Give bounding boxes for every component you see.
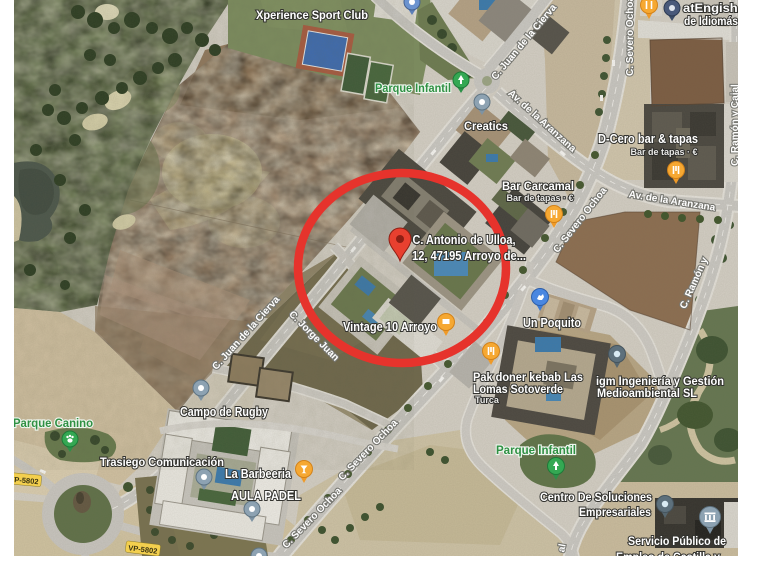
svg-text:C. Severo Ochoa: C. Severo Ochoa bbox=[625, 0, 636, 76]
svg-text:Bar Carcamal: Bar Carcamal bbox=[502, 179, 574, 193]
svg-text:AULA PADEL: AULA PADEL bbox=[231, 489, 301, 503]
svg-text:Servicio Público de: Servicio Público de bbox=[628, 536, 726, 548]
svg-text:Parque Infantil: Parque Infantil bbox=[496, 445, 576, 457]
svg-text:Centro De Soluciones: Centro De Soluciones bbox=[540, 492, 652, 504]
svg-text:Xperience Sport Club: Xperience Sport Club bbox=[256, 10, 368, 22]
svg-text:Parque Canino: Parque Canino bbox=[13, 418, 93, 430]
svg-text:C. Ramón y Cajal: C. Ramón y Cajal bbox=[730, 84, 741, 166]
svg-text:La Barbeeria: La Barbeeria bbox=[225, 467, 292, 481]
svg-text:Campo de Rugby: Campo de Rugby bbox=[180, 405, 268, 419]
svg-text:de Idiomás: de Idiomás bbox=[684, 14, 738, 28]
svg-text:VP-5802: VP-5802 bbox=[9, 475, 39, 487]
svg-text:Empleo de Castilla y...: Empleo de Castilla y... bbox=[616, 552, 728, 561]
svg-text:Un Poquito: Un Poquito bbox=[523, 316, 581, 330]
svg-text:Bar de tapas · €: Bar de tapas · € bbox=[506, 193, 573, 203]
svg-text:Turca: Turca bbox=[475, 395, 500, 405]
svg-text:C. Antonio de Ulloa,: C. Antonio de Ulloa, bbox=[413, 233, 516, 247]
svg-text:Lomas Sotoverde: Lomas Sotoverde bbox=[473, 382, 563, 396]
svg-text:Creatics: Creatics bbox=[464, 119, 508, 133]
svg-text:D-Cero bar & tapas: D-Cero bar & tapas bbox=[598, 132, 698, 146]
svg-text:Medioambiental SL: Medioambiental SL bbox=[597, 386, 697, 400]
svg-text:12, 47195 Arroyo de...: 12, 47195 Arroyo de... bbox=[412, 249, 526, 263]
svg-text:Parque Infantil: Parque Infantil bbox=[375, 83, 451, 95]
svg-text:Trasiego Comunicación: Trasiego Comunicación bbox=[100, 457, 224, 469]
svg-text:Empresariales: Empresariales bbox=[579, 507, 651, 519]
svg-text:atEngish A...: atEngish A... bbox=[683, 1, 761, 15]
svg-text:Bar de tapas · €: Bar de tapas · € bbox=[630, 147, 697, 157]
svg-text:Vintage 10 Arroyo: Vintage 10 Arroyo bbox=[343, 320, 437, 334]
